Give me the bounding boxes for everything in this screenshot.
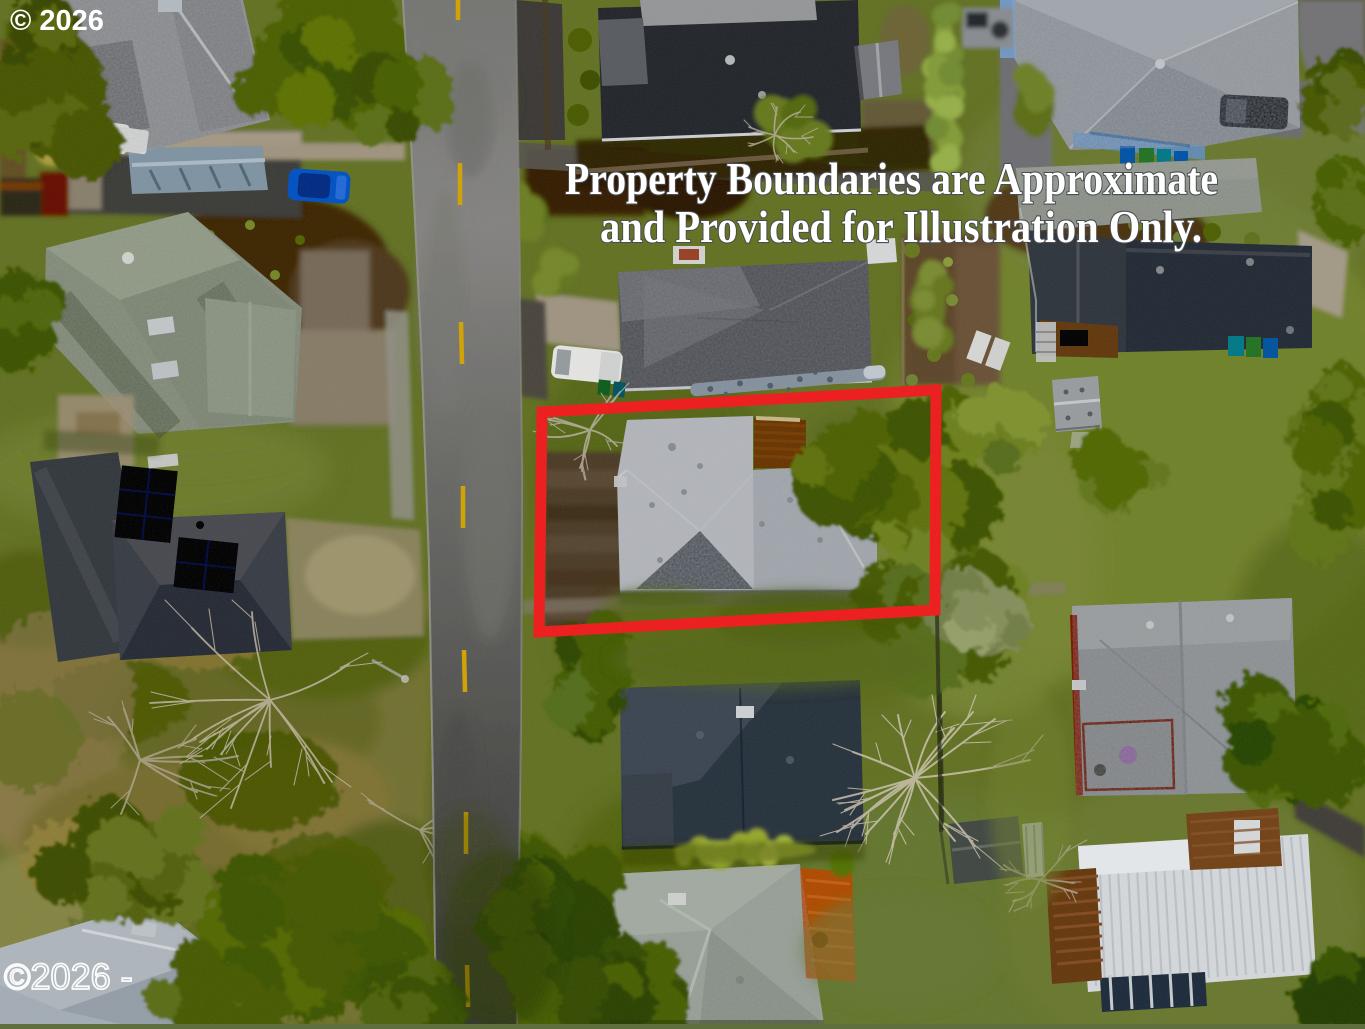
svg-text:©2026 -: ©2026 - xyxy=(4,956,133,997)
svg-text:© 2026: © 2026 xyxy=(10,5,104,37)
svg-text:Property Boundaries are Approx: Property Boundaries are Approximate xyxy=(565,153,1218,204)
svg-text:and Provided for Illustration: and Provided for Illustration Only. xyxy=(600,201,1202,252)
